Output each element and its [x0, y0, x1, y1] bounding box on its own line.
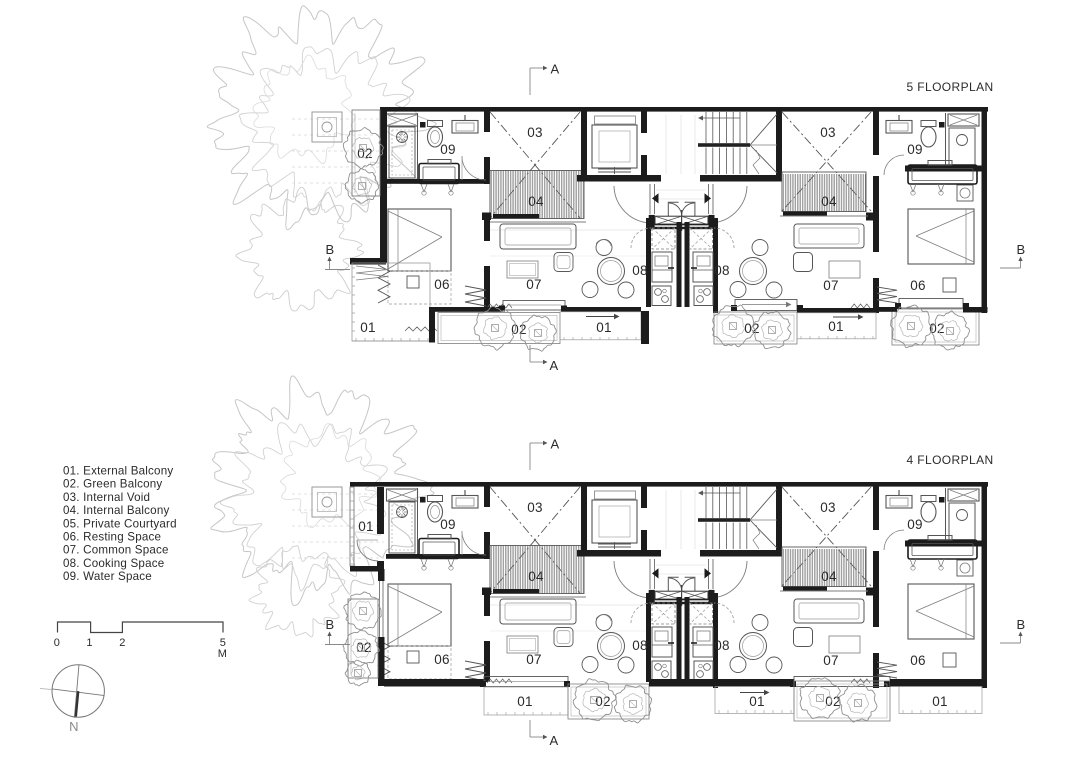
svg-text:5 FLOORPLAN: 5 FLOORPLAN: [906, 80, 993, 94]
svg-text:03: 03: [527, 125, 543, 140]
svg-text:09: 09: [440, 517, 456, 532]
svg-text:09. Water Space: 09. Water Space: [63, 570, 152, 583]
svg-text:08: 08: [714, 638, 730, 653]
svg-text:05. Private Courtyard: 05. Private Courtyard: [63, 517, 177, 530]
svg-text:0: 0: [54, 637, 60, 649]
svg-text:08. Cooking Space: 08. Cooking Space: [63, 557, 164, 570]
svg-text:08: 08: [632, 263, 648, 278]
svg-text:07. Common Space: 07. Common Space: [63, 544, 169, 557]
svg-text:09: 09: [907, 142, 923, 157]
svg-text:01: 01: [749, 694, 765, 709]
svg-text:1: 1: [86, 637, 92, 649]
svg-text:06. Resting Space: 06. Resting Space: [63, 531, 161, 544]
svg-text:A: A: [550, 358, 559, 373]
svg-text:02: 02: [744, 321, 760, 336]
svg-text:B: B: [1017, 617, 1026, 632]
svg-text:04. Internal Balcony: 04. Internal Balcony: [63, 504, 169, 517]
svg-text:06: 06: [434, 277, 450, 292]
svg-text:4 FLOORPLAN: 4 FLOORPLAN: [906, 453, 993, 467]
svg-text:03: 03: [820, 125, 836, 140]
svg-text:2: 2: [119, 637, 125, 649]
svg-text:01: 01: [596, 320, 612, 335]
svg-text:08: 08: [714, 263, 730, 278]
svg-text:04: 04: [821, 194, 837, 209]
svg-text:02: 02: [511, 322, 527, 337]
svg-text:B: B: [1017, 242, 1026, 257]
svg-text:B: B: [326, 617, 335, 632]
svg-text:09: 09: [440, 142, 456, 157]
svg-text:02: 02: [825, 694, 841, 709]
svg-text:04: 04: [821, 569, 837, 584]
svg-text:09: 09: [907, 517, 923, 532]
svg-text:01: 01: [517, 694, 533, 709]
svg-text:04: 04: [528, 194, 544, 209]
svg-text:06: 06: [910, 653, 926, 668]
svg-text:01: 01: [828, 319, 844, 334]
svg-text:01: 01: [358, 519, 374, 534]
svg-text:07: 07: [823, 653, 839, 668]
svg-text:03: 03: [527, 500, 543, 515]
svg-text:02: 02: [356, 640, 372, 655]
svg-text:A: A: [550, 733, 559, 748]
svg-text:A: A: [551, 62, 560, 77]
svg-text:04: 04: [528, 569, 544, 584]
svg-text:B: B: [326, 242, 335, 257]
svg-text:06: 06: [910, 278, 926, 293]
svg-text:07: 07: [526, 652, 542, 667]
svg-text:08: 08: [632, 638, 648, 653]
svg-text:01: 01: [932, 694, 948, 709]
svg-text:07: 07: [823, 278, 839, 293]
svg-text:N: N: [69, 719, 79, 734]
svg-text:07: 07: [526, 277, 542, 292]
svg-text:M: M: [218, 648, 227, 660]
svg-text:03: 03: [820, 500, 836, 515]
svg-text:01: 01: [360, 320, 376, 335]
svg-text:06: 06: [434, 652, 450, 667]
svg-text:01. External Balcony: 01. External Balcony: [63, 465, 173, 478]
svg-text:03. Internal Void: 03. Internal Void: [63, 491, 150, 504]
svg-text:02. Green Balcony: 02. Green Balcony: [63, 478, 162, 491]
svg-text:A: A: [551, 437, 560, 452]
